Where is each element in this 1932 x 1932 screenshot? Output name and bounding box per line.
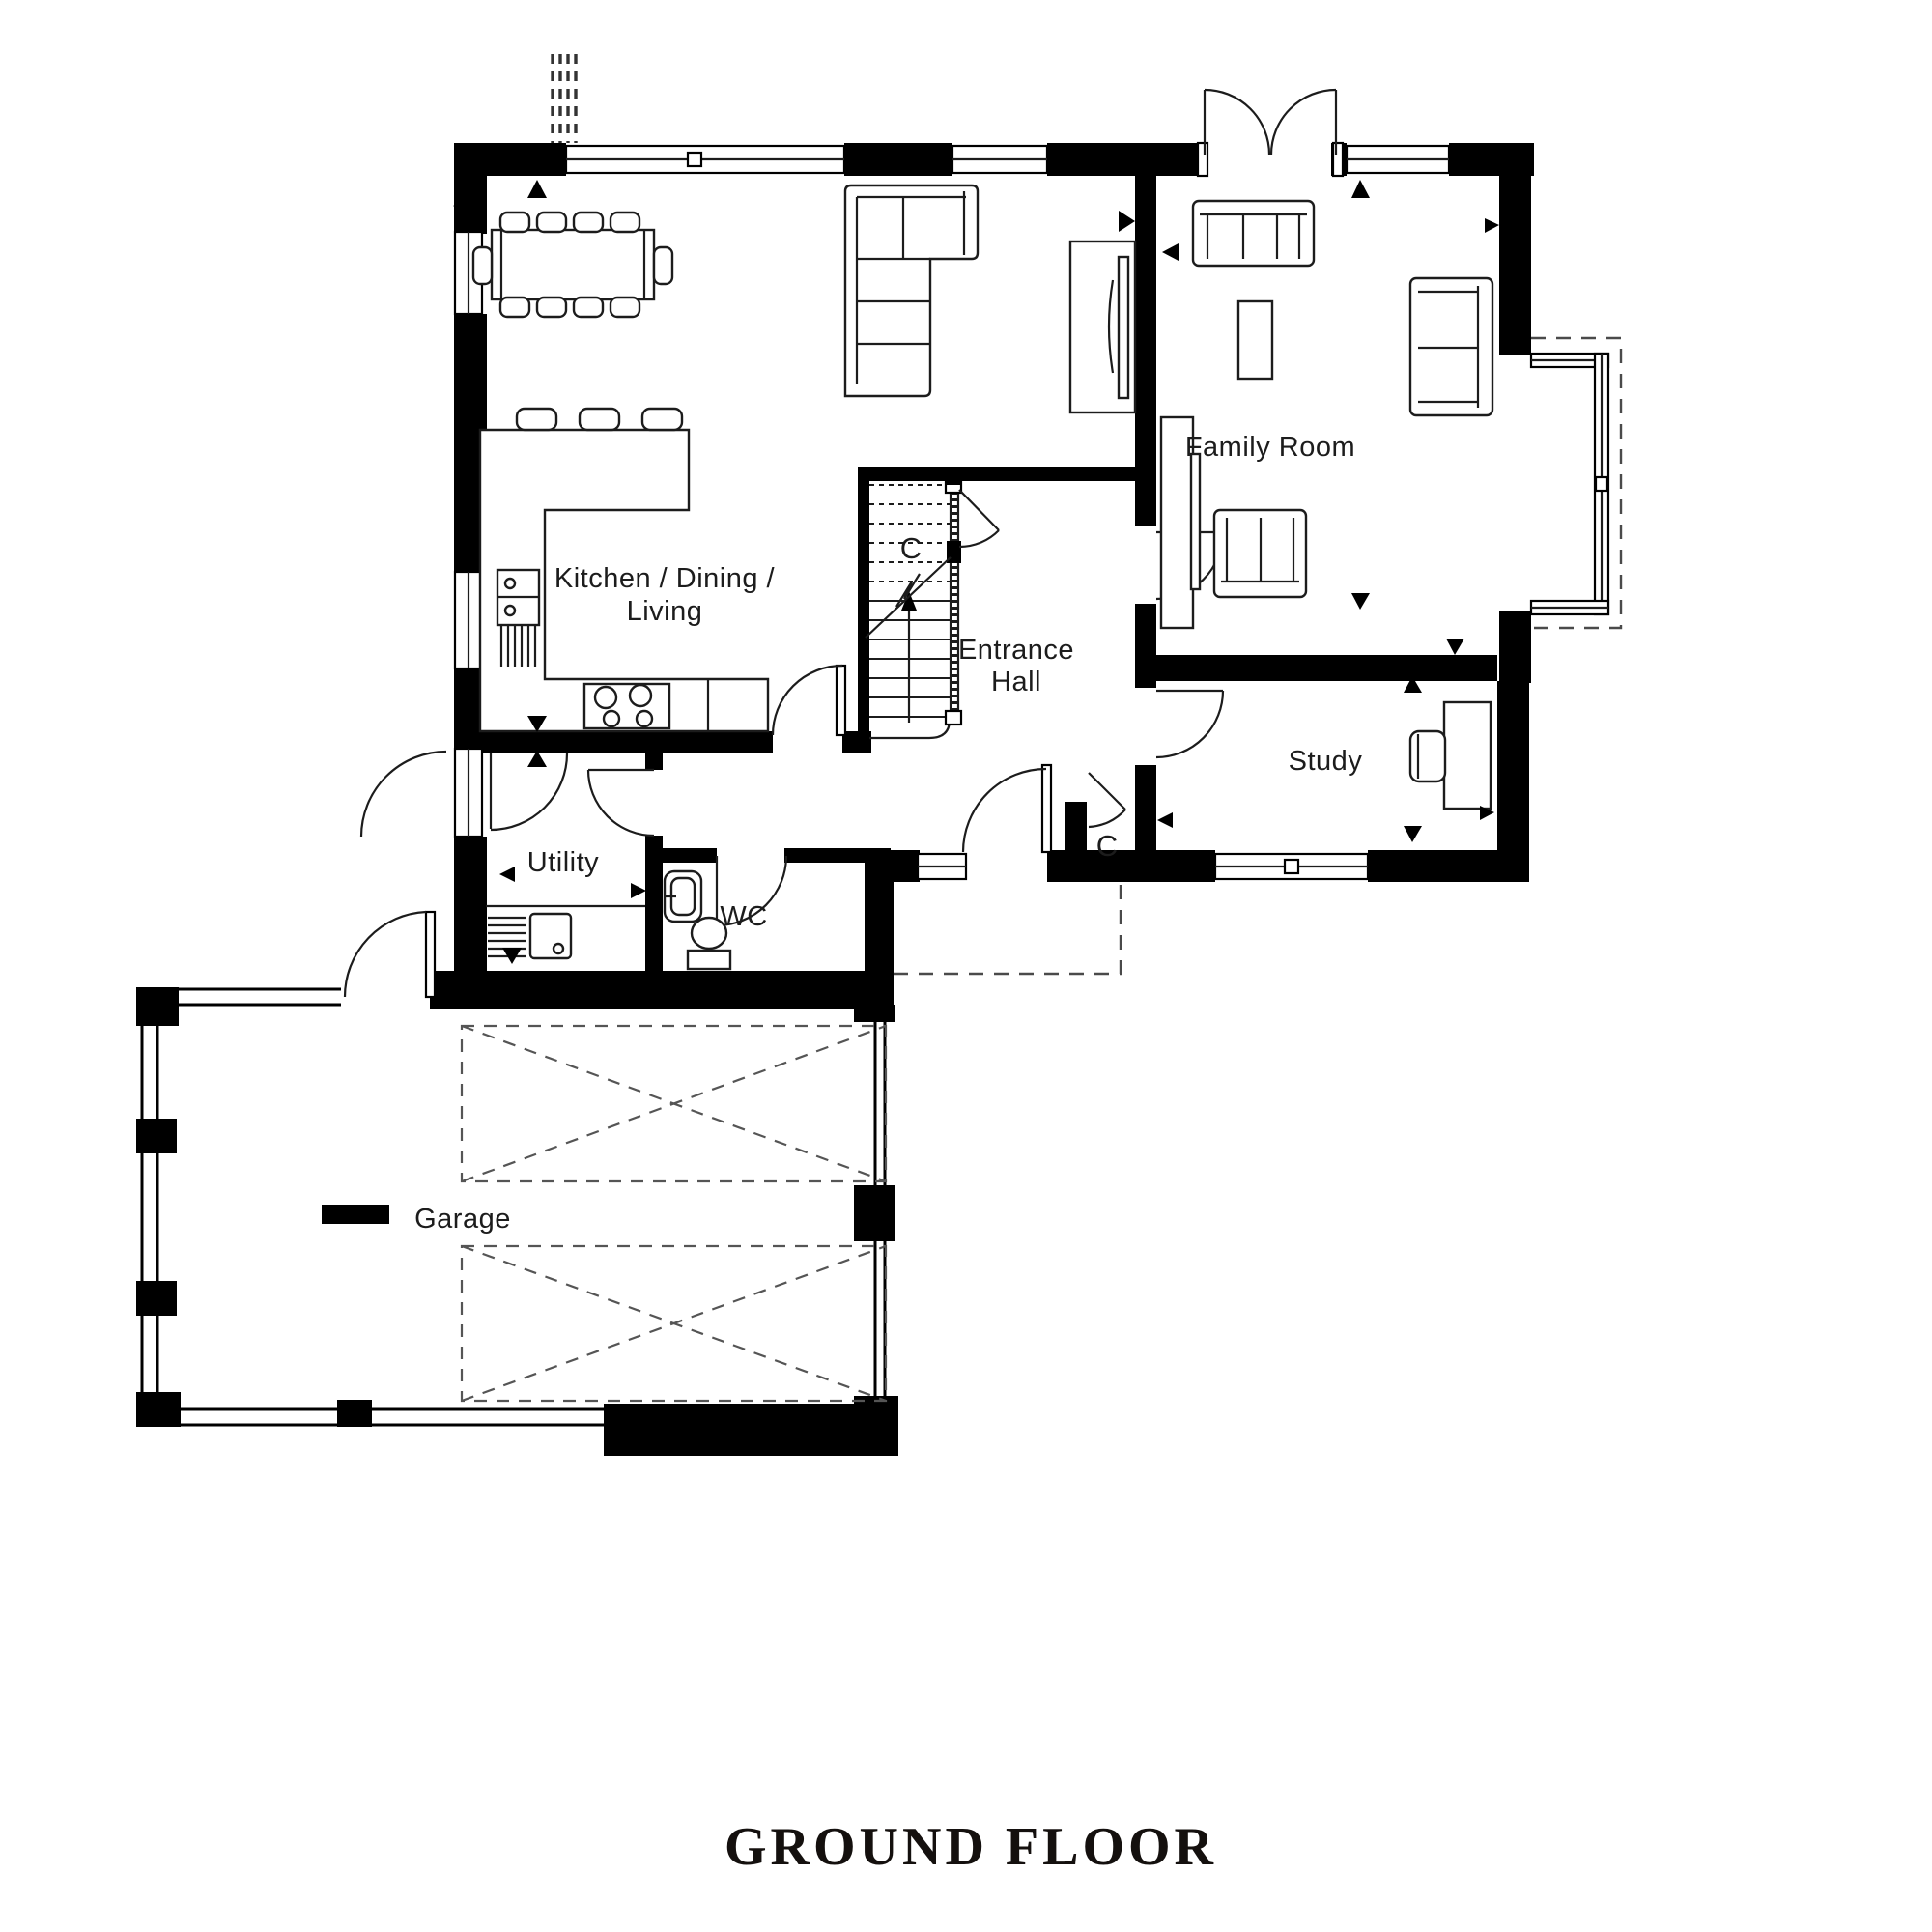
living-furniture bbox=[845, 185, 1135, 412]
study-furniture bbox=[1410, 702, 1491, 809]
wc-label: WC bbox=[720, 901, 767, 932]
hob bbox=[584, 684, 669, 728]
floor-plan-drawing: Kitchen / Dining / Living Entrance Hall … bbox=[0, 0, 1932, 1932]
entrance-hall-label: Entrance bbox=[958, 635, 1074, 666]
living-top-window bbox=[952, 146, 1047, 173]
wc-basin bbox=[665, 871, 701, 922]
study-label: Study bbox=[1289, 746, 1363, 777]
study-front-window bbox=[1215, 854, 1368, 879]
garage-beam bbox=[322, 1205, 389, 1224]
hall-cupboard-door bbox=[1089, 773, 1125, 827]
family-room-label: Family Room bbox=[1185, 432, 1355, 463]
utility-label: Utility bbox=[527, 847, 599, 878]
utility-corridor-door bbox=[588, 770, 654, 836]
desk-chair bbox=[1410, 731, 1445, 781]
bay-window bbox=[1531, 338, 1621, 628]
kitchen-left-window-2 bbox=[455, 572, 482, 668]
utility-sink bbox=[530, 914, 571, 958]
garage-door-1 bbox=[875, 1022, 885, 1185]
garage-side-door bbox=[345, 912, 435, 997]
family-room-furniture bbox=[1161, 201, 1492, 628]
desk bbox=[1444, 702, 1491, 809]
entrance-hall-label-2: Hall bbox=[991, 667, 1041, 697]
porch-canopy-outline bbox=[894, 882, 1121, 974]
flue-dashes-icon bbox=[553, 54, 576, 143]
stairs bbox=[866, 473, 999, 738]
utility-side-door bbox=[361, 749, 482, 837]
page-title: GROUND FLOOR bbox=[724, 1817, 1217, 1877]
hall-front-sidelight bbox=[918, 854, 966, 879]
stairs-cupboard-label: C bbox=[900, 531, 922, 565]
kitchen-dining-living-label: Kitchen / Dining / bbox=[554, 563, 776, 594]
garage-label: Garage bbox=[414, 1204, 511, 1235]
garage-bay-1 bbox=[462, 1026, 886, 1181]
garage-structure bbox=[136, 987, 898, 1456]
corner-sofa bbox=[845, 185, 978, 396]
breakfast-stools bbox=[517, 409, 682, 430]
understairs-cupboard-door bbox=[959, 490, 999, 547]
dining-table bbox=[492, 230, 654, 299]
front-door bbox=[963, 765, 1051, 852]
kitchen-dining-living-label-2: Living bbox=[627, 596, 703, 627]
living-tv-unit bbox=[1070, 241, 1135, 412]
family-loveseat-bottom bbox=[1214, 510, 1306, 597]
family-sofa-top bbox=[1193, 201, 1314, 266]
garage-door-2 bbox=[875, 1241, 885, 1404]
family-sofa-right bbox=[1410, 278, 1492, 415]
garage-bay-2 bbox=[462, 1246, 886, 1401]
kitchen-top-window bbox=[566, 146, 844, 173]
dining-set bbox=[473, 213, 672, 317]
hall-cupboard-label: C bbox=[1096, 829, 1118, 863]
study-door bbox=[1156, 691, 1223, 757]
coffee-table bbox=[1238, 301, 1272, 379]
kitchen-hall-door bbox=[773, 666, 845, 735]
floor-plan-page: Kitchen / Dining / Living Entrance Hall … bbox=[0, 0, 1932, 1932]
family-double-doors bbox=[1198, 90, 1343, 176]
family-top-window bbox=[1347, 146, 1449, 173]
